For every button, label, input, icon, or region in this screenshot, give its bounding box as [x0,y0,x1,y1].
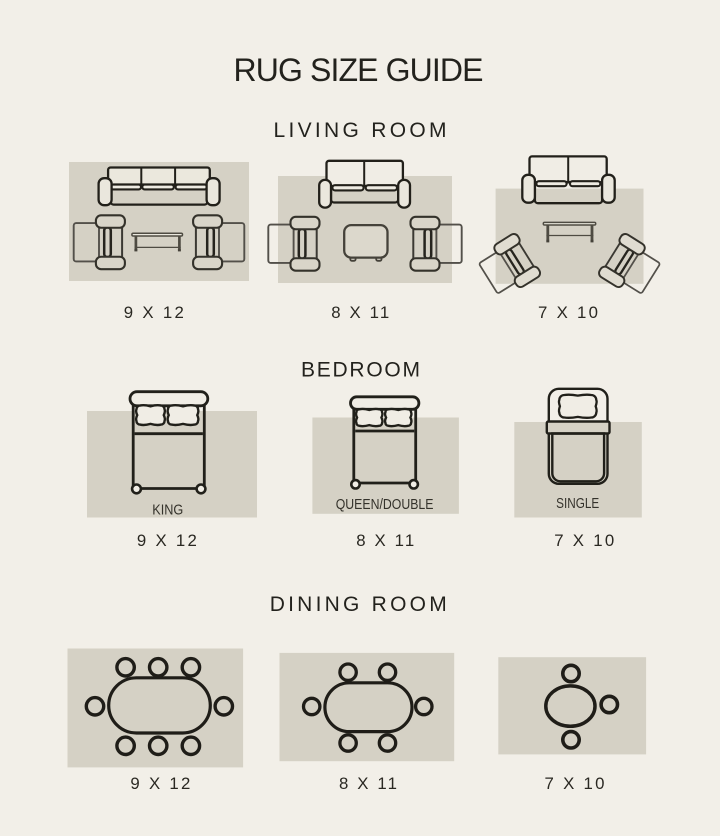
svg-text:SINGLE: SINGLE [556,495,599,511]
svg-text:QUEEN/DOUBLE: QUEEN/DOUBLE [336,496,434,512]
svg-text:8 X 11: 8 X 11 [331,303,389,322]
svg-text:KING: KING [152,502,183,518]
svg-text:8 X 11: 8 X 11 [356,531,414,550]
svg-text:RUG SIZE GUIDE: RUG SIZE GUIDE [234,52,484,88]
svg-text:BEDROOM: BEDROOM [301,358,420,381]
svg-text:8 X 11: 8 X 11 [339,774,397,793]
svg-text:DINING ROOM: DINING ROOM [270,593,447,616]
